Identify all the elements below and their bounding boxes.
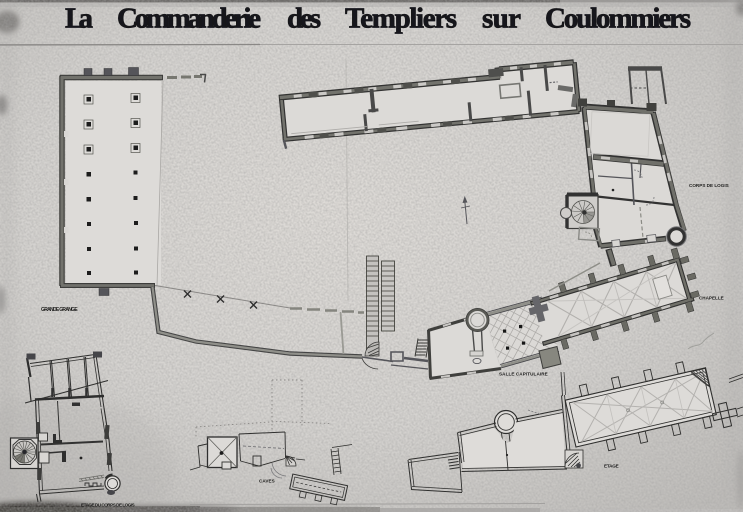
svg-text:ETAGE: ETAGE bbox=[604, 464, 619, 469]
svg-text:CHAPELLE: CHAPELLE bbox=[699, 296, 724, 301]
svg-text:Coulommiers: Coulommiers bbox=[545, 3, 691, 35]
svg-text:La: La bbox=[65, 3, 94, 35]
svg-text:CORPS DE LOGIS: CORPS DE LOGIS bbox=[689, 183, 729, 188]
svg-text:sur: sur bbox=[482, 3, 521, 35]
svg-text:CAVES: CAVES bbox=[259, 479, 275, 484]
svg-text:GRANDE GRANGE: GRANDE GRANGE bbox=[41, 307, 78, 313]
svg-text:SALLE CAPITULAIRE: SALLE CAPITULAIRE bbox=[499, 372, 548, 377]
svg-text:des: des bbox=[287, 3, 321, 35]
svg-text:ETAGE DU CORPS DE LOGIS: ETAGE DU CORPS DE LOGIS bbox=[81, 503, 135, 508]
svg-text:Templiers: Templiers bbox=[345, 3, 457, 35]
svg-text:Commanderie: Commanderie bbox=[117, 3, 261, 35]
